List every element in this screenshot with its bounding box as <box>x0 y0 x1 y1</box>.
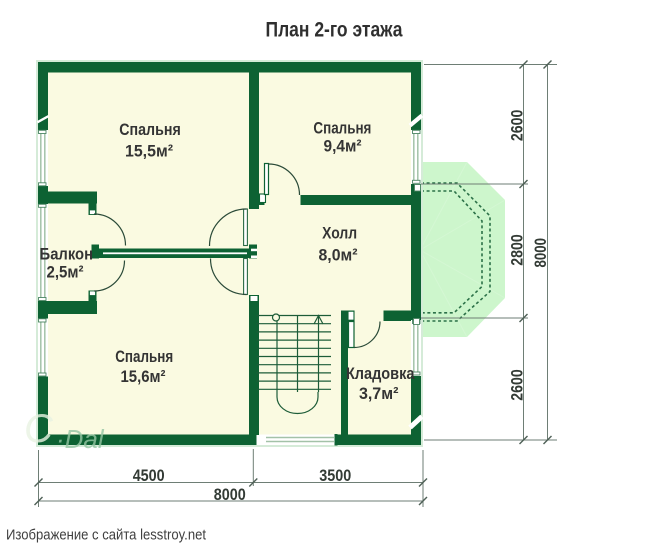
svg-text:15,6м²: 15,6м² <box>121 367 166 386</box>
svg-text:Спальня: Спальня <box>115 347 173 366</box>
svg-text:2600: 2600 <box>508 369 527 401</box>
svg-text:3500: 3500 <box>319 466 351 485</box>
svg-text:Холл: Холл <box>322 224 357 243</box>
svg-text:C: C <box>24 407 54 451</box>
svg-text:Изображение с сайта lesstroy.n: Изображение с сайта lesstroy.net <box>6 527 207 544</box>
svg-text:·Dal: ·Dal <box>56 424 105 454</box>
svg-text:План 2-го этажа: План 2-го этажа <box>266 19 403 42</box>
svg-text:9,4м²: 9,4м² <box>324 137 362 156</box>
svg-text:2800: 2800 <box>508 234 527 266</box>
svg-text:Кладовка: Кладовка <box>346 364 415 383</box>
svg-text:4500: 4500 <box>133 466 165 485</box>
svg-text:Спальня: Спальня <box>313 119 371 138</box>
svg-text:Спальня: Спальня <box>119 120 181 139</box>
svg-text:2600: 2600 <box>508 110 527 141</box>
svg-text:15,5м²: 15,5м² <box>125 142 173 161</box>
svg-text:8,0м²: 8,0м² <box>319 246 358 265</box>
svg-text:3,7м²: 3,7м² <box>359 384 399 403</box>
svg-text:8000: 8000 <box>214 485 246 504</box>
svg-text:Балкон: Балкон <box>40 245 94 264</box>
svg-text:2,5м²: 2,5м² <box>47 263 84 282</box>
svg-text:8000: 8000 <box>531 238 550 268</box>
